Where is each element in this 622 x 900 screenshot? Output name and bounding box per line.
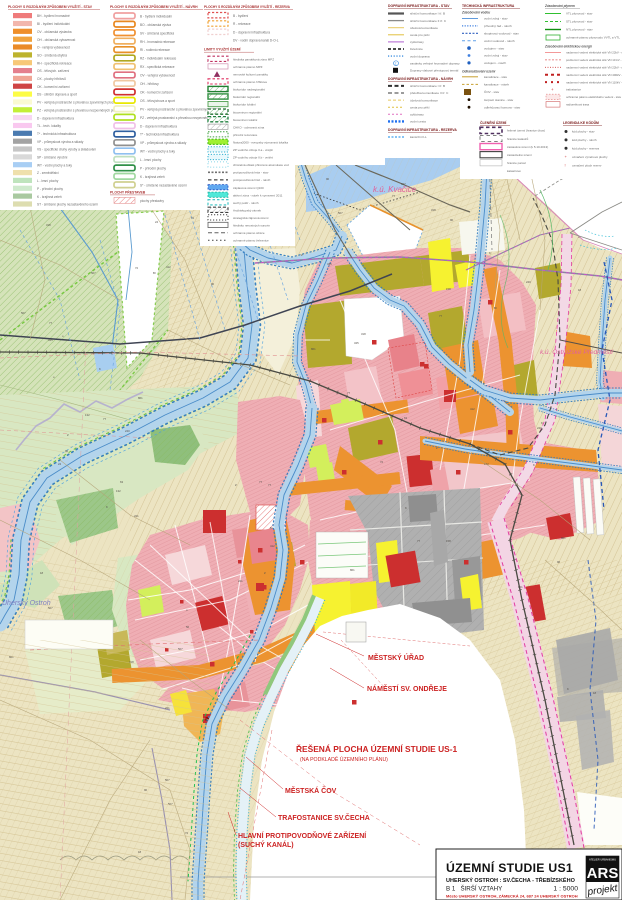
svg-text:Zásobování elektrickou energií: Zásobování elektrickou energií [544, 45, 593, 49]
svg-text:345: 345 [327, 262, 332, 266]
svg-text:VTL plynovod - stav: VTL plynovod - stav [566, 12, 593, 16]
svg-text:63: 63 [404, 416, 408, 420]
svg-text:77: 77 [392, 194, 396, 198]
svg-text:biokoridor lokální: biokoridor lokální [233, 103, 256, 107]
svg-text:Z: Z [301, 253, 303, 257]
svg-text:OV - veřejná vybavenost: OV - veřejná vybavenost [140, 74, 175, 78]
svg-text:nadzemní vedení elektrické sít: nadzemní vedení elektrické sítě VN 22kV … [566, 66, 622, 70]
svg-text:hlediska památková zóna MPZ: hlediska památková zóna MPZ [233, 57, 274, 61]
svg-text:vodojem - stav: vodojem - stav [484, 46, 505, 50]
svg-text:345: 345 [48, 338, 53, 342]
svg-text:ochranné pásmo elektrického ve: ochranné pásmo elektrického vedení - sta… [566, 95, 622, 99]
svg-text:RZ - individuální rekreace: RZ - individuální rekreace [140, 57, 177, 61]
svg-text:RH - specifická rekreace: RH - specifická rekreace [37, 61, 72, 65]
svg-text:Arcibiskupský zámek: Arcibiskupský zámek [233, 208, 262, 212]
svg-text:Natura2000 - evropsky významná: Natura2000 - evropsky významná lokalita [233, 140, 288, 144]
svg-text:PLOCHY PŘESTAVEB: PLOCHY PŘESTAVEB [110, 189, 146, 194]
svg-text:18: 18 [40, 571, 44, 575]
svg-text:účelová komunikace: účelová komunikace [410, 26, 438, 30]
svg-text:DV - vodní doprava kanál D-O-L: DV - vodní doprava kanál D-O-L [233, 39, 279, 43]
svg-text:STL plynovod - stav: STL plynovod - stav [566, 20, 593, 24]
svg-text:k.ú. Kvačice: k.ú. Kvačice [373, 185, 417, 194]
svg-text:TL - tech. lokality: TL - tech. lokality [37, 124, 61, 128]
svg-text:kanalizace - stav: kanalizace - stav [484, 75, 507, 79]
svg-text:158: 158 [446, 539, 451, 543]
svg-text:Uherský Ostroh: Uherský Ostroh [2, 600, 51, 607]
svg-text:L - lesní plochy: L - lesní plochy [140, 158, 162, 162]
svg-text:záplavové území Q100: záplavové území Q100 [233, 186, 264, 190]
svg-text:kód plochy - rezerva: kód plochy - rezerva [572, 147, 599, 151]
svg-text:L - lesní plochy: L - lesní plochy [37, 179, 59, 183]
svg-text:radioreléová trasa: radioreléová trasa [566, 103, 590, 107]
svg-text:PLOCHY S ROZDÍLNÝM ZPŮSOBEM VY: PLOCHY S ROZDÍLNÝM ZPŮSOBEM VYUŽITÍ - RE… [204, 4, 291, 9]
svg-text:nemovité kulturní památky: nemovité kulturní památky [233, 73, 269, 77]
svg-text:čerpací stanice - stav: čerpací stanice - stav [484, 98, 514, 102]
svg-text:221: 221 [238, 579, 243, 583]
svg-text:trafostanice: trafostanice [566, 88, 581, 92]
svg-text:56: 56 [186, 625, 190, 629]
svg-text:B - bydlení individuální: B - bydlení individuální [140, 14, 172, 18]
svg-text:DOPRAVNÍ INFRASTRUKTURA - NÁVR: DOPRAVNÍ INFRASTRUKTURA - NÁVRH [388, 76, 454, 81]
svg-text:kanál D-O-L: kanál D-O-L [410, 135, 427, 139]
svg-text:katastrové: katastrové [507, 169, 521, 173]
svg-text:72: 72 [135, 266, 139, 270]
svg-text:T* - technická infrastruktura: T* - technická infrastruktura [140, 133, 179, 137]
svg-text:biokoridor nadregionální: biokoridor nadregionální [233, 88, 265, 92]
svg-text:nadzemní vedení elektrické sít: nadzemní vedení elektrické sítě VN 110kV… [566, 80, 622, 84]
svg-text:HLAVNÍ PROTIPOVODŇOVÉ ZAŘÍZENÍ: HLAVNÍ PROTIPOVODŇOVÉ ZAŘÍZENÍ [238, 831, 367, 840]
svg-text:(NA PODKLADĚ ÚZEMNÍHO PLÁNU): (NA PODKLADĚ ÚZEMNÍHO PLÁNU) [300, 755, 388, 763]
svg-text:(SUCHÝ KANÁL): (SUCHÝ KANÁL) [238, 840, 294, 849]
svg-text:OS - tělovýchova a sport: OS - tělovýchova a sport [140, 99, 175, 103]
svg-text:hranice katastrů: hranice katastrů [507, 137, 529, 141]
svg-text:CHKO - ochranná zóna: CHKO - ochranná zóna [233, 125, 265, 129]
svg-text:ČOV - stav: ČOV - stav [484, 89, 500, 94]
svg-text:412: 412 [166, 265, 171, 269]
svg-text:63: 63 [120, 480, 124, 484]
svg-text:132: 132 [85, 413, 90, 417]
svg-text:kanalizace - návrh: kanalizace - návrh [484, 83, 509, 87]
svg-text:!: ! [565, 163, 566, 168]
svg-text:označení výměrové plochy: označení výměrové plochy [572, 155, 608, 159]
svg-text:kód plochy - návrh: kód plochy - návrh [572, 138, 597, 142]
svg-text:861: 861 [561, 536, 566, 540]
svg-text:hledisko nerostných surovin: hledisko nerostných surovin [233, 224, 270, 228]
svg-text:B 1 ŠIRŠÍ VZTAHY: B 1 ŠIRŠÍ VZTAHY [446, 886, 502, 893]
svg-text:T* - technická infrastruktura: T* - technická infrastruktura [37, 132, 76, 136]
svg-text:suchý poldr - návrh: suchý poldr - návrh [233, 201, 259, 205]
svg-text:VS - specifické druhy výroby a: VS - specifické druhy výroby a skladován… [37, 148, 96, 152]
svg-text:LEGENDA KE KÓDŮM: LEGENDA KE KÓDŮM [563, 120, 599, 125]
svg-text:ČLENĚNÍ ÚZEMÍ: ČLENĚNÍ ÚZEMÍ [480, 120, 507, 125]
svg-text:18: 18 [578, 288, 582, 292]
svg-text:RI - rodinná rekreace: RI - rodinná rekreace [140, 48, 170, 52]
svg-text:ochranné pásmo MPZ: ochranné pásmo MPZ [233, 65, 263, 69]
svg-text:PLOCHY S ROZDÍLNÝM ZPŮSOBEM VY: PLOCHY S ROZDÍLNÝM ZPŮSOBEM VYUŽITÍ - NÁ… [110, 4, 198, 9]
svg-text:90: 90 [65, 449, 69, 453]
svg-text:strategická zájmová území: strategická zájmová území [233, 216, 269, 220]
svg-text:77: 77 [259, 480, 263, 484]
svg-text:WT - vodní plochy a toky: WT - vodní plochy a toky [140, 150, 175, 154]
svg-text:OX - plochy hřbitovů: OX - plochy hřbitovů [37, 77, 66, 81]
svg-text:+: + [551, 87, 554, 92]
svg-text:Město UHERSKÝ OSTROH, ZÁMECKÁ: Město UHERSKÝ OSTROH, ZÁMECKÁ 24, 687 24… [446, 893, 578, 898]
svg-text:318: 318 [361, 332, 366, 336]
svg-text:318: 318 [46, 223, 51, 227]
svg-text:plochy přestavby: plochy přestavby [140, 199, 164, 203]
svg-text:ÚZEMNÍ STUDIE US1: ÚZEMNÍ STUDIE US1 [446, 860, 573, 875]
svg-text:VP - průmyslová výroba a sklad: VP - průmyslová výroba a sklady [140, 141, 187, 145]
svg-text:Zásobování vodou: Zásobování vodou [461, 11, 490, 15]
svg-text:VP - průmyslová výroba a sklad: VP - průmyslová výroba a sklady [37, 140, 84, 144]
svg-text:NÁMĚSTÍ SV. ONDŘEJE: NÁMĚSTÍ SV. ONDŘEJE [367, 684, 447, 693]
svg-text:507: 507 [21, 311, 26, 315]
svg-text:SV - smíšená specifická: SV - smíšená specifická [140, 31, 174, 35]
svg-text:chráněná oblast přirozené akum: chráněná oblast přirozené akumulace vod [233, 163, 289, 167]
svg-text:vodní zdroj - stav: vodní zdroj - stav [484, 17, 508, 21]
svg-text:D - dopravní infrastruktura: D - dopravní infrastruktura [233, 30, 270, 34]
svg-text:vodní cesta: vodní cesta [410, 120, 426, 124]
svg-text:ochranné pásmo plynovodu VVTL: ochranné pásmo plynovodu VVTL a VTL [566, 36, 620, 40]
svg-text:72: 72 [380, 460, 384, 464]
svg-text:ZP vodního zdroje II.b - vnitř: ZP vodního zdroje II.b - vnitřní [233, 156, 273, 160]
svg-text:PV - veřejná prostranství s př: PV - veřejná prostranství s převahou zpe… [140, 107, 218, 111]
svg-text:240: 240 [537, 426, 542, 430]
svg-text:ATELIER URBANISMU: ATELIER URBANISMU [589, 858, 616, 862]
svg-text:zastávky veřejné hromadné dopr: zastávky veřejné hromadné dopravy [410, 61, 460, 65]
svg-text:ochranné pásmo železnice: ochranné pásmo železnice [233, 239, 269, 243]
svg-text:ochranné pásmo hřbitova: ochranné pásmo hřbitova [233, 80, 267, 84]
svg-text:cesta pro pěší: cesta pro pěší [410, 105, 430, 109]
svg-text:PV - veřejná prostranství s př: PV - veřejná prostranství s převahou zpe… [37, 101, 115, 105]
svg-text:ZP vodního zdroje II.a - vnějš: ZP vodního zdroje II.a - vnější [233, 148, 273, 152]
svg-text:B - bydlení: B - bydlení [233, 14, 248, 18]
svg-text:SO - smíšená obytná: SO - smíšená obytná [37, 53, 67, 57]
svg-text:biocentrum lokální: biocentrum lokální [233, 118, 258, 122]
svg-text:Dopravy vlakové přestupový ter: Dopravy vlakové přestupový termál [410, 69, 459, 73]
svg-text:240: 240 [125, 429, 130, 433]
svg-text:OV - občanská výstavba: OV - občanská výstavba [37, 30, 72, 34]
svg-text:BO - občanská výstva: BO - občanská výstva [140, 23, 171, 27]
svg-text:K - krajinná zeleň: K - krajinná zeleň [37, 195, 62, 199]
svg-text:železnice: železnice [410, 47, 423, 51]
svg-text:318: 318 [431, 208, 436, 212]
svg-text:24: 24 [155, 220, 159, 224]
svg-text:zastavěné území (k 5.10.2013): zastavěné území (k 5.10.2013) [507, 145, 548, 149]
svg-text:cyklotrasy: cyklotrasy [410, 113, 424, 117]
svg-text:861: 861 [138, 396, 143, 400]
svg-text:zastavitelné území: zastavitelné území [507, 153, 532, 157]
svg-text:nadzemní vedení elektrické sít: nadzemní vedení elektrické sítě VN 400kV… [566, 73, 622, 77]
svg-text:odlehčovací komora - stav: odlehčovací komora - stav [484, 105, 521, 109]
svg-text:ST - smíšené plochy nezastavěn: ST - smíšené plochy nezastavěného území [37, 203, 98, 207]
svg-text:vodní vodovod - návrh: vodní vodovod - návrh [484, 39, 515, 43]
svg-text:UHERSKÝ OSTROH : SV.ČECHA - TŘ: UHERSKÝ OSTROH : SV.ČECHA - TŘEBÍZSKÉHO [446, 876, 576, 884]
svg-text:861: 861 [311, 347, 316, 351]
svg-text:DS - silniční doprava a sport: DS - silniční doprava a sport [37, 93, 77, 97]
svg-text:412: 412 [470, 407, 475, 411]
svg-text:vodní doprava: vodní doprava [410, 54, 430, 58]
svg-text:silniční komunikace II tř. C: silniční komunikace II tř. C [410, 19, 447, 23]
svg-text:MĚSTSKÝ ÚŘAD: MĚSTSKÝ ÚŘAD [368, 653, 424, 662]
svg-text:K: K [489, 251, 491, 255]
svg-text:přeložka komunikace II tř. C: přeložka komunikace II tř. C [410, 91, 449, 95]
svg-text:kód plochy - stav: kód plochy - stav [572, 130, 595, 134]
svg-text:507: 507 [91, 271, 96, 275]
svg-text:TECHNICKÁ INFRASTRUKTURA: TECHNICKÁ INFRASTRUKTURA [462, 3, 515, 8]
svg-text:OK - komerční zařízení: OK - komerční zařízení [37, 85, 70, 89]
svg-text:77: 77 [49, 321, 53, 325]
svg-text:BI - bydlení individuální: BI - bydlení individuální [37, 22, 70, 26]
svg-text:S* - smíšené nezastavěné území: S* - smíšené nezastavěné území [140, 183, 187, 187]
svg-text:řešené území (hranice úkos): řešené území (hranice úkos) [507, 129, 545, 133]
svg-text:K: K [405, 506, 407, 510]
svg-text:RH - hromadná rekreace: RH - hromadná rekreace [140, 40, 175, 44]
svg-text:77: 77 [417, 539, 421, 543]
svg-text:silniční komunikace I tř. B: silniční komunikace I tř. B [410, 84, 445, 88]
svg-text:DOPRAVNÍ INFRASTRUKTURA - REZE: DOPRAVNÍ INFRASTRUKTURA - REZERVA [388, 127, 457, 132]
svg-text:Z: Z [264, 571, 266, 575]
svg-text:Z: Z [436, 446, 438, 450]
svg-text:přívodný řad - návrh: přívodný řad - návrh [484, 24, 512, 28]
svg-text:1 : 5000: 1 : 5000 [553, 886, 578, 893]
svg-text:345: 345 [354, 341, 359, 345]
svg-text:K: K [99, 367, 101, 371]
svg-text:861: 861 [518, 585, 523, 589]
svg-text:DOPRAVNÍ INFRASTRUKTURA - STAV: DOPRAVNÍ INFRASTRUKTURA - STAV [388, 3, 450, 8]
svg-text:hranice parcel: hranice parcel [507, 161, 526, 165]
svg-text:90: 90 [211, 282, 215, 286]
svg-text:protipovodňová hráz - stav: protipovodňová hráz - stav [233, 171, 269, 175]
svg-text:ŘEŠENÁ PLOCHA ÚZEMNÍ STUDIE US: ŘEŠENÁ PLOCHA ÚZEMNÍ STUDIE US-1 [296, 743, 457, 754]
svg-text:MĚSTSKÁ ČOV: MĚSTSKÁ ČOV [285, 786, 337, 795]
svg-text:OH - hřbitovy: OH - hřbitovy [140, 82, 159, 86]
svg-text:18: 18 [593, 691, 597, 695]
svg-text:90: 90 [326, 177, 330, 181]
svg-text:LIMITY VYUŽITÍ ÚZEMÍ: LIMITY VYUŽITÍ ÚZEMÍ [204, 47, 242, 52]
svg-text:TRAFOSTANICE SV.ČECHA: TRAFOSTANICE SV.ČECHA [278, 813, 370, 822]
svg-text:77: 77 [439, 314, 443, 318]
svg-text:vodojem - návrh: vodojem - návrh [484, 61, 506, 65]
svg-text:P - přírodní plochy: P - přírodní plochy [140, 167, 166, 171]
svg-text:77: 77 [268, 483, 272, 487]
svg-text:aktivní zóna - návrh k vymezen: aktivní zóna - návrh k vymezení 2011 [233, 193, 283, 197]
svg-text:158: 158 [446, 287, 451, 291]
svg-text:SP - smíšené výrobní: SP - smíšené výrobní [37, 156, 68, 160]
svg-text:K: K [541, 421, 543, 425]
svg-text:skupinový vodovod - stav: skupinový vodovod - stav [484, 32, 519, 36]
svg-text:72: 72 [191, 216, 195, 220]
svg-text:přírodní rezervace: přírodní rezervace [233, 133, 258, 137]
svg-text:nadzemní vedení elektrické sít: nadzemní vedení elektrické sítě VN 22kV … [566, 51, 622, 55]
svg-text:označení ploch rezerv: označení ploch rezerv [572, 163, 602, 167]
svg-text:O - veřejná vybavenost: O - veřejná vybavenost [37, 46, 70, 50]
svg-text:Z: Z [67, 433, 69, 437]
svg-text:24: 24 [58, 462, 62, 466]
svg-text:K: K [567, 687, 569, 691]
svg-text:Z: Z [395, 61, 397, 65]
svg-text:BH - bydlení hromadné: BH - bydlení hromadné [37, 14, 70, 18]
svg-text:507: 507 [338, 211, 343, 215]
svg-text:K: K [106, 505, 108, 509]
svg-text:77: 77 [103, 417, 107, 421]
svg-text:BI: BI [153, 271, 156, 275]
svg-text:Z - zemědělství: Z - zemědělství [37, 171, 59, 175]
svg-text:ochranné pásmo silnice: ochranné pásmo silnice [233, 231, 265, 235]
svg-text:NTL plynovod - stav: NTL plynovod - stav [566, 28, 593, 32]
svg-text:D - dopravní infrastruktura: D - dopravní infrastruktura [140, 124, 177, 128]
svg-text:protipovodňová hráz - návrh: protipovodňová hráz - návrh [233, 178, 271, 182]
svg-text:K: K [533, 463, 535, 467]
svg-text:132: 132 [116, 489, 121, 493]
svg-text:cesta pro pěší: cesta pro pěší [410, 33, 430, 37]
svg-text:BI: BI [270, 526, 273, 530]
svg-text:OS - tělových. zařízení: OS - tělových. zařízení [37, 69, 69, 73]
svg-text:Z: Z [235, 483, 237, 487]
svg-text:Odkanalizování území: Odkanalizování území [462, 69, 496, 73]
svg-text:biokoridor regionální: biokoridor regionální [233, 95, 260, 99]
svg-text:BI: BI [494, 306, 497, 310]
svg-text:OH - občanská vybavenost: OH - občanská vybavenost [37, 38, 75, 42]
svg-text:účelová komunikace: účelová komunikace [410, 98, 438, 102]
svg-text:PLOCHY S ROZDÍLNÝM ZPŮSOBEM VY: PLOCHY S ROZDÍLNÝM ZPŮSOBEM VYUŽITÍ - ST… [8, 4, 93, 9]
svg-text:P - přírodní plochy: P - přírodní plochy [37, 187, 63, 191]
svg-text:K - krajinná zeleň: K - krajinná zeleň [140, 175, 165, 179]
svg-text:R - rekreace: R - rekreace [233, 22, 251, 26]
svg-text:RX - specifická rekreace: RX - specifická rekreace [140, 65, 175, 69]
svg-text:podzemní vedení elektrické sít: podzemní vedení elektrické sítě VN 10 kV… [566, 58, 622, 62]
svg-text:k.ú. Ostrožské Předměstí: k.ú. Ostrožské Předměstí [540, 349, 614, 356]
svg-text:PZ - veřejná prostranství s př: PZ - veřejná prostranství s převahou nez… [37, 108, 119, 112]
svg-text:Zásobování plynem: Zásobování plynem [544, 4, 575, 8]
svg-text:90: 90 [557, 560, 561, 564]
svg-text:WT - vodní plochy a toky: WT - vodní plochy a toky [37, 163, 72, 167]
svg-text:silniční komunikace I tř. B: silniční komunikace I tř. B [410, 12, 445, 16]
svg-text:90: 90 [450, 218, 454, 222]
svg-text:D - dopravní infrastruktura: D - dopravní infrastruktura [37, 116, 74, 120]
svg-text:ARS: ARS [587, 865, 619, 882]
svg-text:861: 861 [350, 568, 355, 572]
svg-text:biocentrum regionální: biocentrum regionální [233, 110, 262, 114]
svg-text:240: 240 [526, 280, 531, 284]
svg-text:OK - komerční zařízení: OK - komerční zařízení [140, 90, 173, 94]
svg-text:cyklotrasy: cyklotrasy [410, 40, 424, 44]
svg-text:vodní zdroj - stav: vodní zdroj - stav [484, 54, 508, 58]
svg-text:77: 77 [347, 391, 351, 395]
svg-text:412: 412 [270, 544, 275, 548]
